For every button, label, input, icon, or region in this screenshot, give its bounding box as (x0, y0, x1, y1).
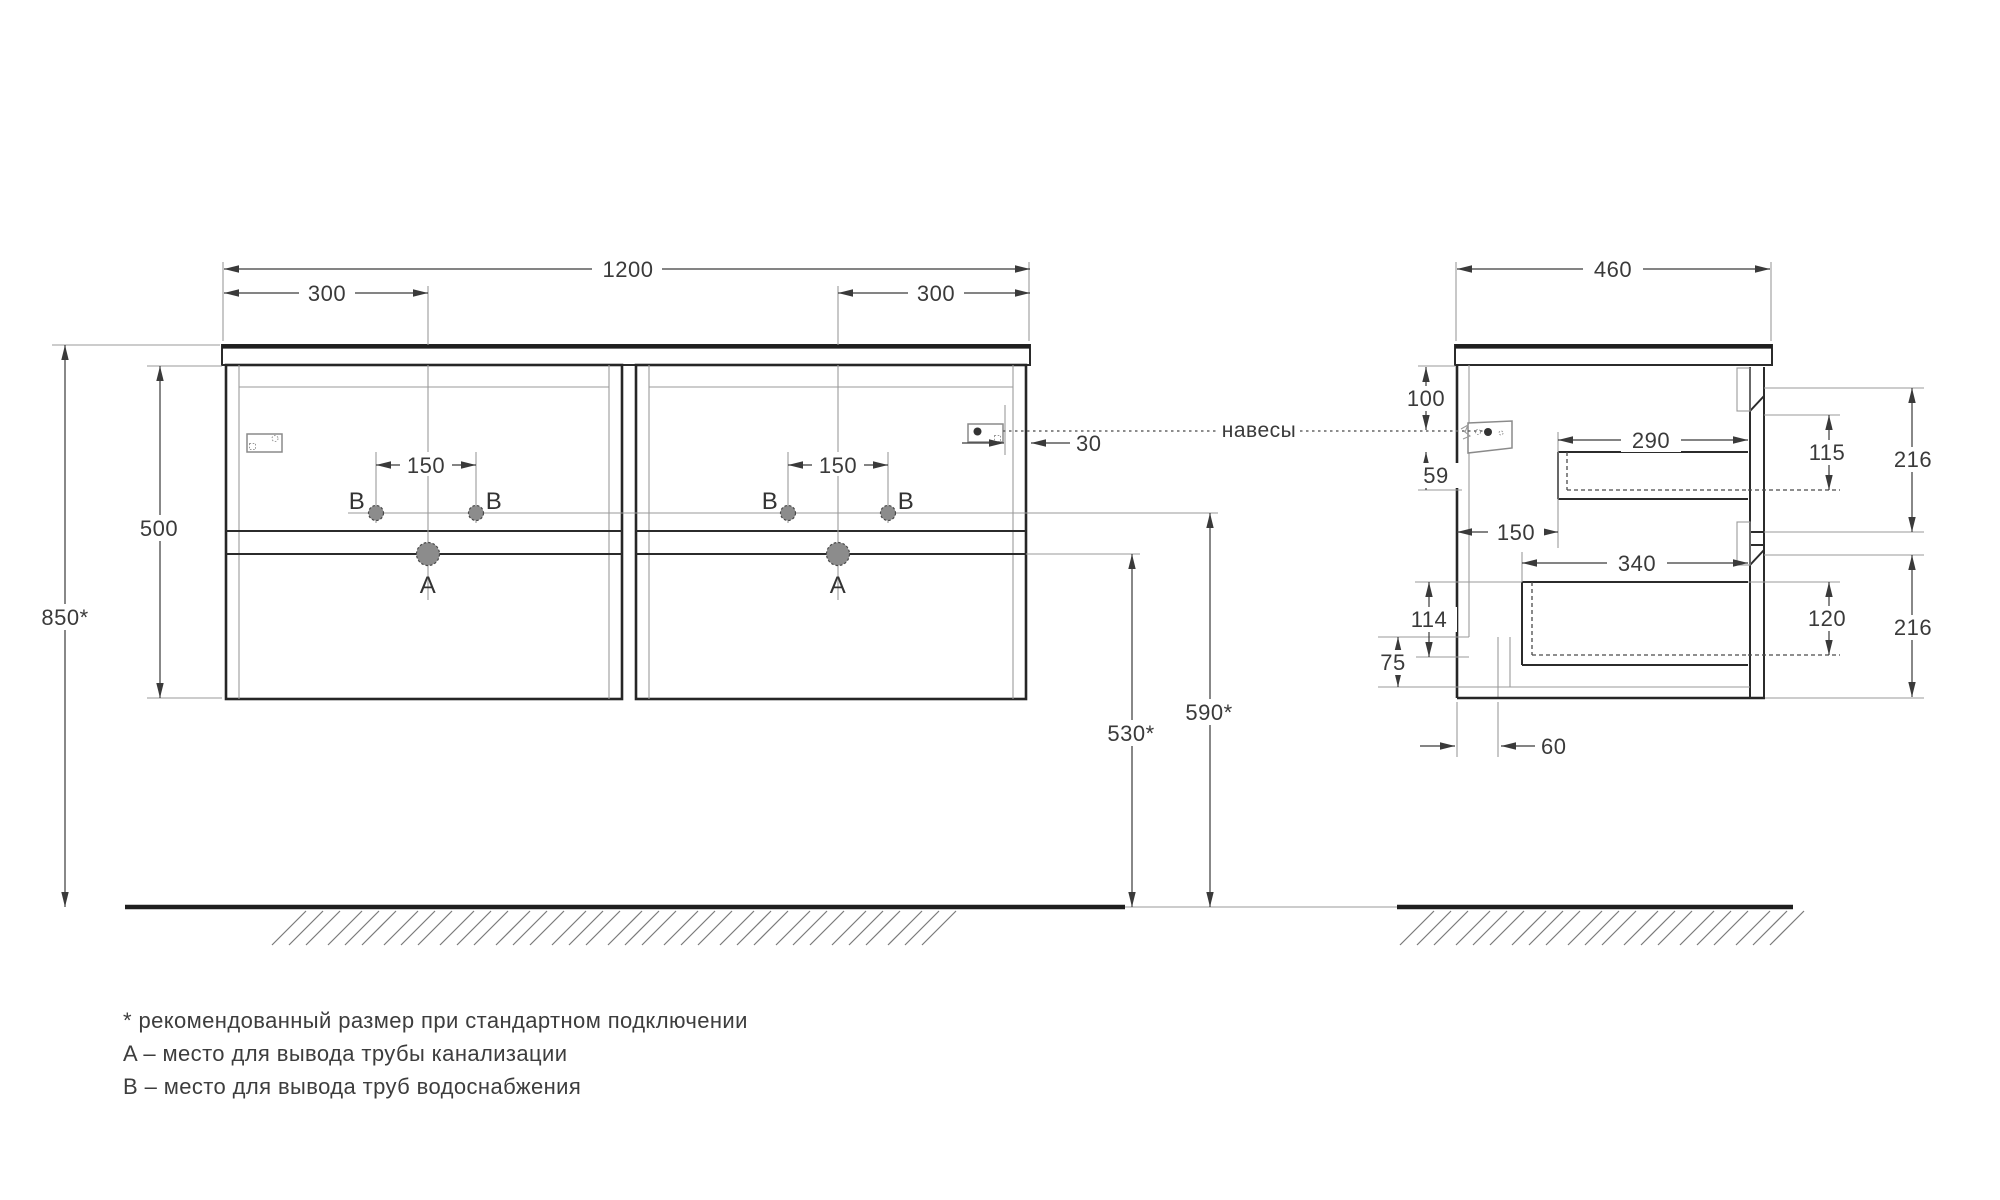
floor-hatching-side (1400, 911, 1804, 945)
dim-supply-height: 590* (1176, 513, 1242, 907)
hanger-bracket-right-icon (968, 424, 1003, 442)
dim-left-offset-value: 300 (308, 281, 346, 306)
dim-holes-spacing-left: 150 (376, 452, 476, 478)
dim-notch-height: 75 (1370, 637, 1416, 687)
dim-left-offset: 300 (224, 280, 428, 306)
side-extension-lines (1378, 262, 1924, 757)
dim-right-offset: 300 (838, 280, 1030, 306)
hole-label-a2: A (830, 572, 847, 599)
dim-upper-inner-height: 115 (1801, 415, 1855, 490)
hole-label-b2: B (486, 488, 503, 515)
dim-holes-spacing-right-value: 150 (819, 453, 857, 478)
dim-mount-height-value: 850* (41, 605, 88, 630)
dim-holes-spacing-right: 150 (788, 452, 888, 478)
front-countertop (222, 345, 1030, 365)
dim-drain-height-value: 530* (1107, 721, 1154, 746)
dim-holes-spacing-left-value: 150 (407, 453, 445, 478)
front-view: B B B B A A (52, 262, 1218, 699)
dim-supply-height-value: 590* (1185, 700, 1232, 725)
dim-lower-inner-height: 120 (1798, 582, 1856, 655)
dim-hanger-offset-value: 30 (1076, 431, 1101, 456)
dim-notch-depth: 60 (1420, 734, 1566, 759)
hanger-bracket-side-icon (1461, 421, 1512, 453)
front-cabinet-right-box (636, 365, 1026, 699)
floor-hatching-front (272, 911, 956, 945)
dim-lower-front-height: 216 (1883, 555, 1943, 697)
hole-label-a1: A (420, 572, 437, 599)
front-cabinet-left-box (226, 365, 622, 699)
legend-note-b: B – место для вывода труб водоснабжения (123, 1074, 581, 1099)
dim-depth-value: 460 (1594, 257, 1632, 282)
legend: * рекомендованный размер при стандартном… (123, 1008, 748, 1099)
dim-notch-depth-value: 60 (1541, 734, 1566, 759)
hanger-bracket-left-icon (247, 434, 282, 452)
legend-note-a: A – место для вывода трубы канализации (123, 1041, 567, 1066)
dim-lower-drawer-depth: 340 (1522, 550, 1748, 576)
legend-note-asterisk: * рекомендованный размер при стандартном… (123, 1008, 748, 1033)
dim-upper-drawer-depth-value: 290 (1632, 428, 1670, 453)
dim-notch-height-value: 75 (1380, 650, 1405, 675)
side-view (1378, 262, 1924, 757)
side-drawer-fronts (1737, 367, 1764, 698)
hole-label-b1: B (349, 488, 366, 515)
floor-front (125, 907, 1397, 945)
dim-drawer-setback: 150 (1457, 519, 1558, 545)
dim-right-offset-value: 300 (917, 281, 955, 306)
drawing-canvas: B B B B A A (0, 0, 2000, 1200)
dim-upper-inner-height-value: 115 (1809, 440, 1846, 465)
dim-top-clearance-value: 100 (1407, 386, 1445, 411)
dim-cabinet-height-value: 500 (140, 516, 178, 541)
dim-top-clearance: 100 (1397, 367, 1455, 430)
dim-upper-front-height: 216 (1883, 388, 1943, 532)
dim-overall-width-value: 1200 (603, 257, 654, 282)
dim-cabinet-height: 500 (130, 366, 188, 698)
side-upper-drawer-box (1558, 452, 1748, 499)
dim-mount-height: 850* (33, 345, 97, 907)
side-countertop (1455, 345, 1772, 365)
hole-label-b3: B (762, 488, 779, 515)
dim-overall-width: 1200 (224, 255, 1030, 282)
dim-drain-height: 530* (1098, 554, 1164, 907)
dim-lower-inner-height-value: 120 (1808, 606, 1846, 631)
hole-label-b4: B (898, 488, 915, 515)
floor-side (1397, 907, 1804, 945)
dim-lower-drawer-depth-value: 340 (1618, 551, 1656, 576)
dim-back-clearance: 114 (1401, 582, 1457, 657)
side-lower-drawer-box (1522, 582, 1748, 665)
hangers-callout-label: навесы (1222, 419, 1296, 442)
dim-depth: 460 (1457, 255, 1770, 282)
dim-upper-front-height-value: 216 (1894, 447, 1932, 472)
dim-drawer-setback-value: 150 (1497, 520, 1535, 545)
dim-bracket-gap: 59 (1412, 452, 1460, 490)
vanity-installation-drawing: B B B B A A (0, 0, 2000, 1200)
dim-upper-drawer-depth: 290 (1558, 427, 1748, 453)
dim-bracket-gap-value: 59 (1423, 463, 1448, 488)
dim-lower-front-height-value: 216 (1894, 615, 1932, 640)
dim-back-clearance-value: 114 (1411, 607, 1448, 632)
